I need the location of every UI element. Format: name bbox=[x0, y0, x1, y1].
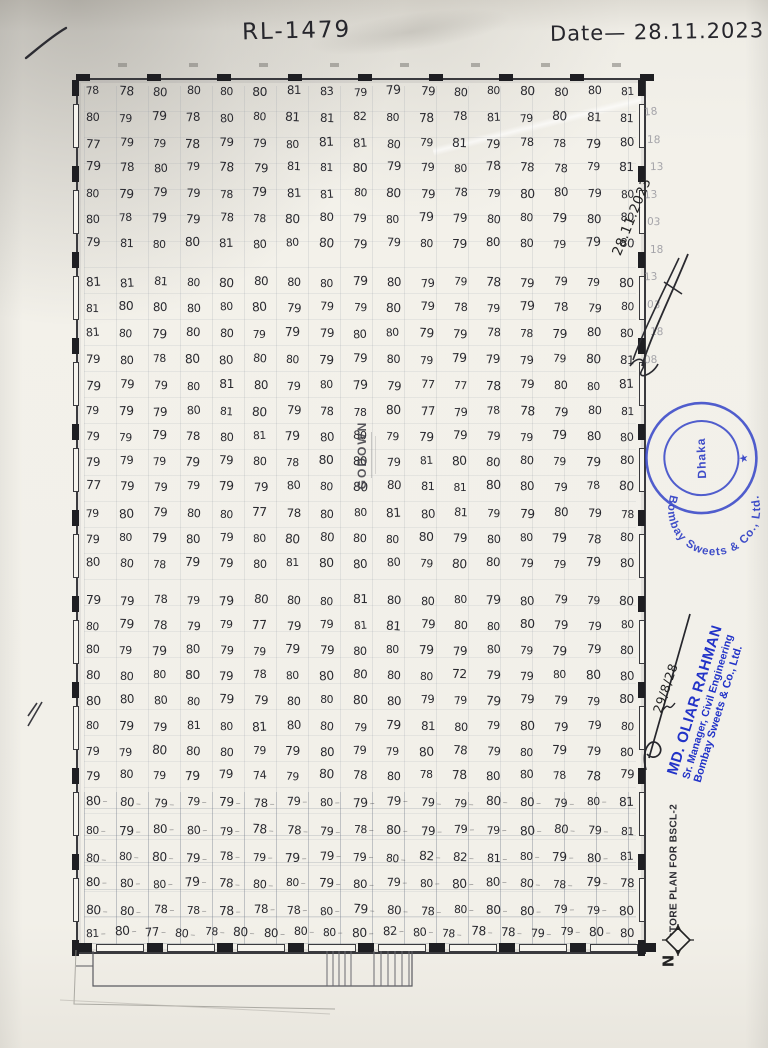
measurement-value: 80 bbox=[386, 110, 399, 126]
measurement-value: 80 bbox=[586, 429, 601, 446]
measurement-value: 81 bbox=[454, 480, 467, 496]
measurement-value: 79 bbox=[520, 430, 533, 446]
measurement-value: 79 bbox=[554, 902, 568, 918]
measurement-value: 83 bbox=[320, 84, 334, 100]
signature-date: 29/8/28 bbox=[650, 661, 681, 715]
measurement-value: 80 bbox=[186, 506, 200, 523]
wall-column bbox=[638, 338, 645, 354]
measurement-row: 8080797979787980797979798080798081 bbox=[86, 795, 634, 811]
measurement-value: 81 bbox=[153, 274, 167, 291]
measurement-value: 80 bbox=[86, 668, 101, 685]
measurement-value: 80 bbox=[387, 478, 402, 494]
measurement-value: 80 bbox=[520, 849, 533, 865]
measurement-value: 80 bbox=[454, 85, 468, 102]
measurement-value: 79 bbox=[486, 668, 500, 684]
measurement-value: 79 bbox=[285, 642, 300, 659]
measurement-value: 79 bbox=[585, 875, 600, 892]
wall-column bbox=[72, 338, 79, 354]
measurement-value: 80 bbox=[419, 876, 432, 892]
measurement-value: 80 bbox=[520, 236, 534, 252]
wall-column bbox=[358, 943, 374, 952]
wall-column bbox=[72, 854, 79, 870]
measurement-value: 74 bbox=[253, 768, 267, 785]
measurement-value: 79 bbox=[353, 720, 367, 737]
measurement-value: 80 bbox=[320, 795, 333, 811]
measurement-value: 79 bbox=[487, 186, 500, 202]
measurement-value: 80 bbox=[386, 555, 400, 572]
measurement-value: 79 bbox=[319, 849, 334, 866]
measurement-value: 79 bbox=[552, 327, 567, 343]
measurement-row: 8080808079798080808079797979797980 bbox=[86, 693, 634, 709]
measurement-value: 81 bbox=[85, 325, 99, 342]
measurement-value: 80 bbox=[486, 642, 500, 659]
measurement-value: 80 bbox=[619, 135, 634, 152]
measurement-value: 79 bbox=[586, 593, 600, 610]
measurement-value: 80 bbox=[487, 619, 500, 635]
measurement-value: 79 bbox=[553, 480, 567, 497]
measurement-value: 80 bbox=[86, 823, 99, 839]
wall-segment bbox=[73, 534, 79, 578]
measurement-row: 8079798079797979808079798079797980 bbox=[86, 643, 634, 659]
measurement-value: 80 bbox=[621, 719, 635, 736]
measurement-value: 81 bbox=[86, 301, 99, 317]
measurement-value: 79 bbox=[151, 327, 166, 344]
measurement-value: 79 bbox=[588, 186, 602, 203]
measurement-value: 80 bbox=[353, 185, 367, 202]
measurement-value: 80 bbox=[320, 719, 334, 736]
measurement-value: 80 bbox=[519, 530, 533, 547]
measurement-row: 7980798080777880808180817979807978 bbox=[86, 506, 634, 522]
measurement-value: 80 bbox=[114, 924, 129, 941]
measurement-value: 80 bbox=[320, 377, 334, 394]
measurement-value: 80 bbox=[486, 875, 501, 892]
measurement-value: 80 bbox=[588, 83, 602, 99]
measurement-value: 81 bbox=[86, 275, 101, 292]
measurement-value: 78 bbox=[553, 136, 566, 152]
measurement-value: 80 bbox=[319, 430, 334, 447]
measurement-value: 80 bbox=[520, 745, 533, 761]
measurement-value: 79 bbox=[285, 325, 300, 341]
measurement-value: 79 bbox=[287, 794, 301, 810]
measurement-value: 79 bbox=[486, 744, 500, 761]
measurement-value: 78 bbox=[353, 768, 368, 784]
measurement-value: 78 bbox=[320, 404, 334, 420]
measurement-value: 79 bbox=[553, 351, 567, 368]
measurement-value: 80 bbox=[119, 849, 133, 866]
room-label-sidemark bbox=[375, 436, 376, 474]
measurement-value: 81 bbox=[219, 404, 233, 421]
measurement-value: 79 bbox=[585, 455, 600, 471]
measurement-value: 80 bbox=[253, 351, 267, 368]
measurement-value: 80 bbox=[175, 926, 189, 943]
measurement-value: 78 bbox=[519, 404, 535, 421]
measurement-value: 79 bbox=[420, 84, 435, 101]
measurement-value: 81 bbox=[320, 187, 334, 204]
measurement-value: 80 bbox=[286, 352, 300, 369]
measurement-value: 79 bbox=[152, 505, 167, 522]
measurement-value: 79 bbox=[253, 136, 267, 152]
wall-column bbox=[570, 74, 584, 81]
measurement-value: 80 bbox=[286, 235, 300, 252]
measurement-value: 82 bbox=[453, 850, 468, 866]
measurement-value: 80 bbox=[252, 531, 266, 548]
measurement-value: 78 bbox=[487, 325, 501, 341]
measurement-value: 79 bbox=[252, 644, 266, 661]
measurement-value: 79 bbox=[151, 531, 166, 547]
measurement-value: 80 bbox=[320, 479, 334, 496]
wall-segment bbox=[73, 620, 79, 664]
measurement-value: 80 bbox=[319, 530, 334, 547]
measurement-value: 78 bbox=[120, 160, 135, 176]
measurement-value: 78 bbox=[286, 455, 299, 471]
measurement-value: 80 bbox=[318, 556, 333, 573]
measurement-value: 80 bbox=[119, 299, 134, 315]
measurement-value: 79 bbox=[453, 796, 467, 813]
wall-column bbox=[72, 682, 79, 698]
measurement-value: 81 bbox=[420, 719, 434, 735]
header-date: Date— 28.11.2023 bbox=[550, 18, 764, 46]
wall-segment bbox=[590, 944, 638, 952]
measurement-value: 80 bbox=[286, 668, 300, 685]
measurement-value: 79 bbox=[585, 235, 601, 252]
wall-segment bbox=[639, 362, 645, 406]
measurement-value: 79 bbox=[554, 720, 569, 737]
measurement-value: 80 bbox=[86, 642, 100, 658]
measurement-value: 80 bbox=[454, 618, 468, 634]
north-label: N bbox=[659, 955, 677, 968]
measurement-value: 79 bbox=[219, 479, 234, 496]
measurement-value: 79 bbox=[118, 824, 133, 840]
measurement-value: 77 bbox=[453, 378, 466, 394]
measurement-value: 80 bbox=[386, 212, 399, 228]
measurement-value: 79 bbox=[86, 532, 100, 548]
measurement-value: 81 bbox=[320, 160, 333, 176]
measurement-value: 79 bbox=[352, 274, 367, 291]
measurement-row: 8079808079787879788079797980807981 bbox=[86, 823, 634, 839]
measurement-value: 80 bbox=[352, 926, 367, 943]
measurement-row: 8080787878787880798078808080797980 bbox=[86, 903, 634, 919]
measurement-value: 80 bbox=[353, 877, 367, 893]
measurement-value: 79 bbox=[387, 875, 401, 891]
measurement-value: 79 bbox=[153, 796, 167, 813]
measurement-value: 79 bbox=[86, 769, 100, 785]
measurement-value: 80 bbox=[233, 925, 248, 942]
measurement-value: 80 bbox=[620, 926, 635, 942]
measurement-value: 80 bbox=[85, 555, 100, 572]
measurement-value: 80 bbox=[152, 877, 166, 894]
measurement-value: 80 bbox=[486, 455, 501, 472]
measurement-value: 80 bbox=[320, 276, 333, 292]
measurement-value: 80 bbox=[620, 453, 634, 469]
measurement-value: 79 bbox=[252, 185, 267, 202]
measurement-value: 79 bbox=[519, 111, 533, 128]
measurement-value: 79 bbox=[554, 405, 569, 422]
measurement-value: 80 bbox=[386, 851, 400, 868]
measurement-value: 81 bbox=[219, 377, 234, 393]
measurement-value: 81 bbox=[352, 136, 367, 153]
measurement-value: 80 bbox=[264, 926, 278, 942]
measurement-value: 79 bbox=[120, 377, 135, 394]
measurement-value: 80 bbox=[120, 795, 135, 812]
measurement-value: 78 bbox=[253, 902, 268, 918]
measurement-value: 81 bbox=[620, 111, 634, 127]
measurement-value: 79 bbox=[520, 669, 534, 685]
outer-tick bbox=[471, 63, 480, 67]
measurement-value: 80 bbox=[386, 301, 401, 317]
measurement-value: 80 bbox=[620, 556, 635, 572]
measurement-value: 78 bbox=[621, 507, 634, 523]
measurement-value: 79 bbox=[520, 377, 534, 393]
measurement-value: 79 bbox=[219, 135, 233, 151]
measurement-value: 80 bbox=[253, 877, 267, 894]
bleed-through-number: 18 bbox=[650, 326, 664, 338]
measurement-value: 78 bbox=[154, 592, 168, 608]
wall-column bbox=[72, 166, 79, 182]
measurement-value: 79 bbox=[285, 744, 300, 760]
measurement-value: 80 bbox=[151, 850, 166, 867]
measurement-value: 78 bbox=[620, 876, 634, 892]
measurement-value: 79 bbox=[286, 301, 301, 318]
measurement-value: 79 bbox=[186, 159, 200, 176]
measurement-value: 80 bbox=[320, 904, 334, 921]
measurement-value: 80 bbox=[554, 85, 568, 101]
measurement-value: 80 bbox=[286, 718, 301, 735]
measurement-value: 80 bbox=[186, 301, 200, 317]
measurement-value: 79 bbox=[320, 299, 334, 316]
measurement-row: 81807780788080808080828078787879798080 bbox=[86, 925, 634, 941]
measurement-value: 81 bbox=[287, 159, 301, 175]
measurement-value: 79 bbox=[487, 301, 500, 317]
measurement-value: 79 bbox=[219, 669, 233, 685]
measurement-value: 79 bbox=[118, 404, 133, 421]
measurement-value: 78 bbox=[486, 379, 501, 395]
measurement-value: 78 bbox=[219, 210, 233, 227]
measurement-value: 80 bbox=[286, 137, 299, 153]
measurement-value: 79 bbox=[253, 743, 266, 759]
measurement-value: 80 bbox=[620, 643, 634, 659]
credit-block: MD. OLIAR RAHMAN Sr. Manager, Civil Engi… bbox=[664, 562, 768, 785]
measurement-value: 79 bbox=[420, 276, 434, 293]
measurement-value: 81 bbox=[285, 110, 300, 127]
measurement-value: 80 bbox=[486, 235, 500, 251]
measurement-value: 80 bbox=[386, 532, 399, 548]
measurement-value: 80 bbox=[252, 85, 267, 101]
measurement-value: 80 bbox=[185, 744, 200, 761]
measurement-value: 79 bbox=[119, 135, 133, 152]
measurement-value: 79 bbox=[552, 644, 567, 661]
pen-check-mark bbox=[24, 696, 50, 730]
measurement-value: 80 bbox=[220, 84, 233, 100]
measurement-value: 80 bbox=[453, 592, 466, 608]
measurement-value: 78 bbox=[453, 109, 468, 125]
measurement-value: 79 bbox=[151, 644, 166, 661]
measurement-value: 79 bbox=[353, 743, 367, 759]
measurement-row: 8080787979808180808079808079797980 bbox=[86, 556, 634, 572]
measurement-value: 82 bbox=[353, 109, 367, 125]
measurement-value: 80 bbox=[387, 694, 402, 710]
measurement-value: 80 bbox=[387, 769, 401, 785]
measurement-value: 79 bbox=[520, 692, 535, 709]
measurement-value: 80 bbox=[520, 210, 534, 227]
wall-segment bbox=[449, 944, 497, 952]
measurement-value: 79 bbox=[587, 694, 600, 710]
wall-segment bbox=[73, 706, 79, 750]
measurement-value: 79 bbox=[151, 109, 166, 126]
wall-segment bbox=[639, 792, 645, 836]
measurement-value: 81 bbox=[621, 824, 634, 840]
measurement-value: 79 bbox=[485, 593, 500, 610]
measurement-value: 80 bbox=[120, 904, 135, 920]
measurement-value: 79 bbox=[487, 823, 501, 840]
measurement-row: 7980788080808079798079797979798081 bbox=[86, 352, 634, 368]
measurement-value: 81 bbox=[454, 505, 468, 522]
measurement-value: 81 bbox=[352, 592, 367, 608]
measurement-value: 79 bbox=[519, 299, 534, 316]
measurement-value: 80 bbox=[186, 532, 201, 548]
measurement-value: 79 bbox=[418, 643, 433, 660]
measurement-value: 80 bbox=[520, 187, 535, 203]
measurement-value: 80 bbox=[588, 403, 602, 419]
wall-segment bbox=[639, 620, 645, 664]
wall-column bbox=[72, 252, 79, 268]
measurement-value: 80 bbox=[353, 161, 368, 177]
room-label: GODOWN bbox=[355, 409, 369, 501]
wall-segment bbox=[167, 944, 215, 952]
measurement-value: 80 bbox=[186, 83, 200, 99]
measurement-value: 79 bbox=[253, 693, 268, 709]
plan-caption: STORE PLAN FOR BSCL-2 bbox=[669, 797, 680, 947]
measurement-value: 81 bbox=[620, 353, 635, 369]
measurement-value: 81 bbox=[420, 479, 434, 495]
stamp-center-text: Dhaka bbox=[694, 437, 709, 478]
measurement-value: 80 bbox=[353, 531, 367, 547]
measurement-value: 80 bbox=[554, 185, 569, 201]
measurement-value: 79 bbox=[453, 274, 467, 291]
measurement-value: 80 bbox=[419, 530, 434, 546]
measurement-row: 8079798180818080797981807980797980 bbox=[86, 719, 634, 735]
measurement-value: 80 bbox=[520, 594, 535, 611]
measurement-value: 79 bbox=[220, 617, 233, 633]
measurement-value: 80 bbox=[386, 186, 401, 203]
wall-column bbox=[72, 768, 79, 784]
measurement-value: 79 bbox=[487, 506, 501, 523]
measurement-value: 79 bbox=[386, 744, 400, 761]
measurement-value: 79 bbox=[151, 428, 166, 444]
measurement-value: 80 bbox=[589, 925, 604, 941]
measurement-value: 80 bbox=[185, 668, 200, 684]
measurement-value: 80 bbox=[118, 507, 134, 524]
measurement-value: 78 bbox=[452, 768, 467, 784]
measurement-value: 81 bbox=[619, 160, 634, 176]
measurement-value: 78 bbox=[118, 84, 134, 101]
measurement-value: 82 bbox=[382, 924, 397, 941]
measurement-value: 79 bbox=[387, 159, 401, 175]
measurement-value: 79 bbox=[552, 531, 568, 548]
measurement-value: 78 bbox=[287, 903, 301, 920]
measurement-row: 8079787979777979818179808080797980 bbox=[86, 618, 634, 634]
measurement-value: 79 bbox=[420, 353, 433, 369]
measurement-value: 79 bbox=[219, 824, 233, 841]
measurement-value: 80 bbox=[420, 594, 434, 610]
measurement-value: 80 bbox=[387, 593, 401, 609]
measurement-value: 79 bbox=[586, 903, 600, 920]
measurement-value: 79 bbox=[353, 850, 367, 867]
measurement-value: 80 bbox=[85, 794, 101, 811]
measurement-value: 78 bbox=[420, 767, 433, 783]
measurement-value: 78 bbox=[553, 877, 567, 894]
measurement-value: 80 bbox=[86, 110, 99, 126]
measurement-value: 80 bbox=[552, 109, 568, 126]
measurement-value: 79 bbox=[86, 429, 100, 446]
measurement-value: 77 bbox=[86, 478, 101, 495]
bleed-through-number: 03 bbox=[647, 298, 661, 311]
measurement-value: 79 bbox=[519, 643, 533, 660]
measurement-value: 79 bbox=[386, 794, 401, 811]
measurement-value: 79 bbox=[554, 796, 567, 812]
measurement-value: 79 bbox=[620, 767, 635, 784]
measurement-value: 80 bbox=[386, 903, 401, 920]
measurement-value: 81 bbox=[252, 720, 267, 737]
measurement-value: 80 bbox=[620, 745, 634, 761]
measurement-value: 78 bbox=[286, 823, 301, 840]
measurement-value: 79 bbox=[418, 210, 433, 227]
measurement-value: 80 bbox=[587, 794, 600, 810]
measurement-value: 78 bbox=[152, 351, 165, 367]
measurement-value: 79 bbox=[420, 692, 434, 709]
measurement-value: 79 bbox=[287, 379, 301, 395]
measurement-value: 80 bbox=[320, 594, 333, 610]
measurement-value: 78 bbox=[520, 135, 533, 151]
measurement-value: 80 bbox=[619, 594, 634, 611]
measurement-value: 81 bbox=[286, 555, 299, 571]
measurement-value: 80 bbox=[153, 693, 167, 710]
measurement-value: 78 bbox=[441, 926, 455, 943]
measurement-value: 79 bbox=[421, 299, 435, 315]
measurement-value: 78 bbox=[204, 924, 218, 941]
measurement-value: 80 bbox=[86, 212, 100, 228]
measurement-value: 80 bbox=[86, 694, 101, 711]
wall-column bbox=[288, 943, 304, 952]
measurement-value: 80 bbox=[219, 276, 234, 293]
measurement-value: 79 bbox=[286, 403, 301, 419]
measurement-value: 80 bbox=[253, 274, 267, 290]
measurement-value: 79 bbox=[185, 875, 201, 892]
measurement-value: 79 bbox=[253, 850, 266, 866]
measurement-value: 78 bbox=[353, 822, 366, 838]
measurement-value: 79 bbox=[219, 767, 234, 784]
measurement-value: 79 bbox=[319, 326, 334, 342]
measurement-value: 77 bbox=[420, 404, 435, 420]
measurement-value: 80 bbox=[486, 555, 501, 571]
measurement-value: 80 bbox=[86, 718, 99, 734]
wall-segment bbox=[378, 944, 426, 952]
measurement-value: 79 bbox=[587, 301, 601, 318]
measurement-value: 79 bbox=[419, 135, 433, 152]
measurement-value: 80 bbox=[353, 644, 366, 660]
measurement-value: 79 bbox=[153, 185, 167, 201]
measurement-value: 80 bbox=[287, 593, 301, 610]
measurement-value: 80 bbox=[153, 300, 167, 316]
measurement-value: 80 bbox=[386, 642, 399, 658]
measurement-value: 78 bbox=[152, 557, 166, 574]
measurement-value: 80 bbox=[585, 668, 600, 685]
measurement-value: 79 bbox=[386, 429, 400, 446]
measurement-value: 79 bbox=[419, 556, 433, 573]
wall-column bbox=[429, 943, 445, 952]
bleed-through-number: 18 bbox=[650, 244, 663, 256]
measurement-value: 80 bbox=[153, 237, 166, 253]
measurement-value: 80 bbox=[619, 692, 634, 708]
